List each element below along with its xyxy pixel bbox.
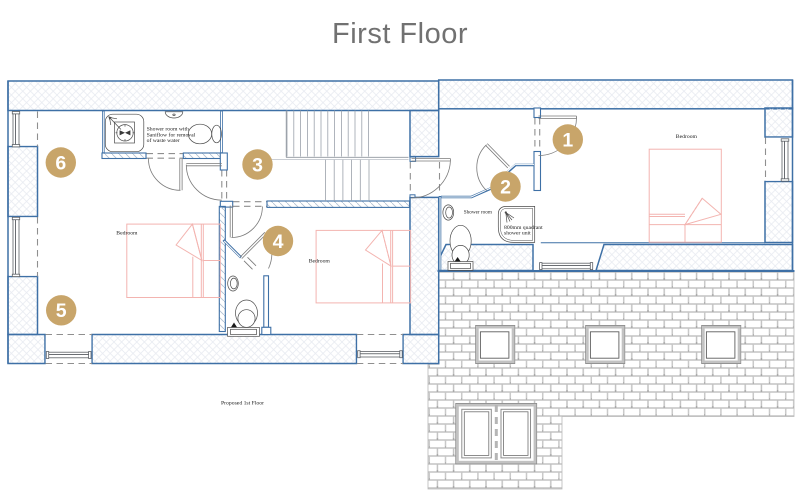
svg-text:3: 3	[252, 154, 263, 176]
svg-text:First Floor: First Floor	[332, 18, 468, 50]
svg-text:Bedroom: Bedroom	[676, 134, 698, 140]
svg-text:of waste water: of waste water	[147, 137, 180, 144]
svg-text:Bedroom: Bedroom	[116, 230, 138, 236]
svg-text:Bedroom: Bedroom	[309, 259, 331, 265]
svg-text:5: 5	[56, 300, 67, 322]
svg-text:Proposed 1st Floor: Proposed 1st Floor	[221, 400, 264, 406]
svg-text:2: 2	[500, 176, 511, 198]
svg-text:1: 1	[562, 129, 573, 151]
svg-text:Shower room: Shower room	[464, 210, 492, 216]
svg-text:6: 6	[55, 152, 66, 174]
svg-text:shower unit: shower unit	[504, 231, 531, 237]
svg-text:4: 4	[273, 231, 284, 253]
